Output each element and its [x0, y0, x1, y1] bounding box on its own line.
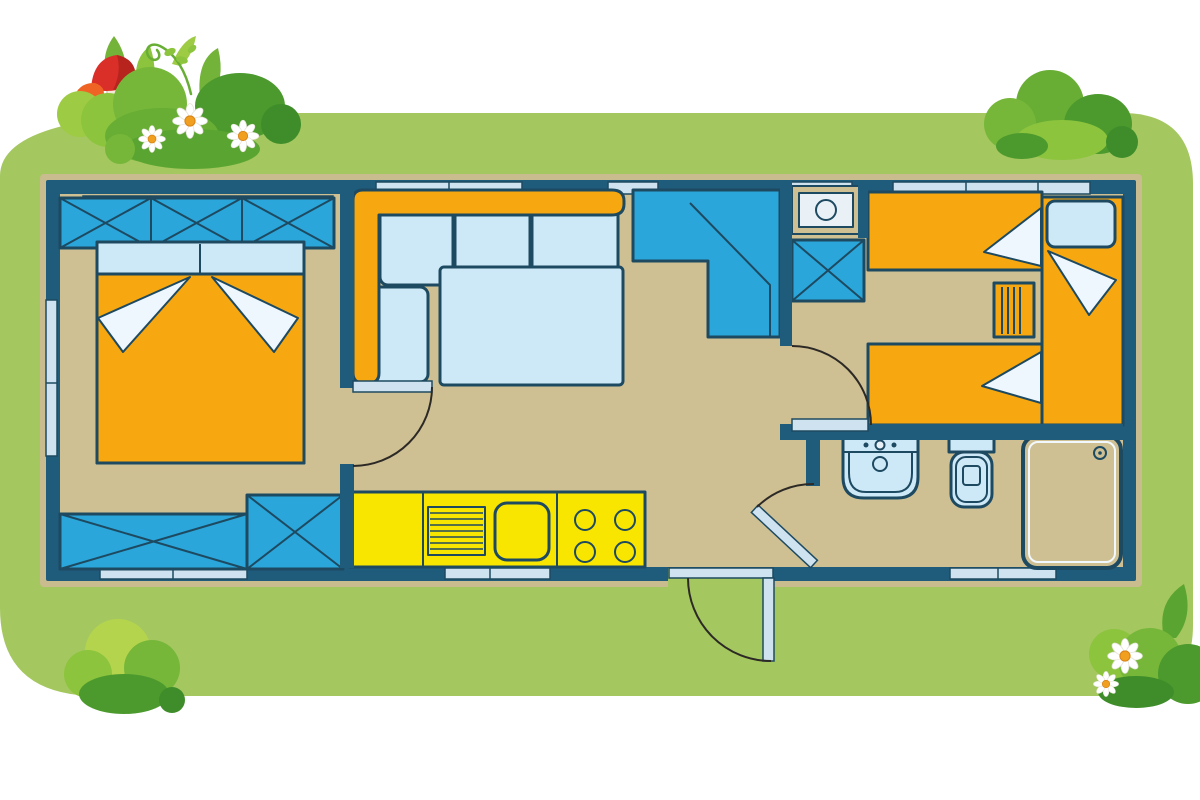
hallway-storage-cabinet — [792, 240, 864, 301]
window — [445, 568, 550, 579]
bush-blob — [996, 133, 1048, 159]
dining-table — [440, 267, 623, 385]
window — [46, 300, 57, 456]
daisy-flower — [1108, 639, 1143, 674]
daisy-flower — [1093, 671, 1118, 696]
daisy-flower — [139, 126, 166, 153]
bush-blob — [261, 104, 301, 144]
boiler-appliance — [792, 186, 860, 234]
wall-hall-pillar — [780, 180, 792, 346]
master-bed-blanket — [97, 274, 304, 463]
daisy-flower — [173, 104, 208, 139]
bush-top-right — [984, 70, 1138, 160]
daisy-flower — [227, 120, 259, 152]
bush-blob — [79, 674, 169, 714]
entrance-threshold — [669, 568, 773, 578]
master-corner-cabinet — [247, 495, 343, 569]
toilet-icon — [949, 438, 994, 507]
wall-niche-pillar — [858, 180, 868, 238]
wall-bathroom-pillar — [806, 440, 820, 486]
master-bedroom-door-leaf — [353, 381, 432, 392]
wall-master-upper — [340, 180, 354, 388]
entrance-door-leaf — [763, 578, 774, 661]
kids-drawer-unit — [994, 283, 1034, 337]
master-bench-chest — [60, 514, 247, 569]
illustration-canvas — [0, 0, 1200, 800]
bush-blob — [105, 134, 135, 164]
wall-master-lower — [340, 464, 354, 568]
washbasin-icon — [843, 438, 918, 498]
kitchen-counter — [350, 492, 645, 567]
bush-blob — [1106, 126, 1138, 158]
bush-blob — [159, 687, 185, 713]
kids-bedroom-door-leaf — [792, 419, 868, 431]
kids-bed-pillow-under — [1047, 201, 1115, 247]
floor-plan-illustration — [0, 0, 1200, 800]
